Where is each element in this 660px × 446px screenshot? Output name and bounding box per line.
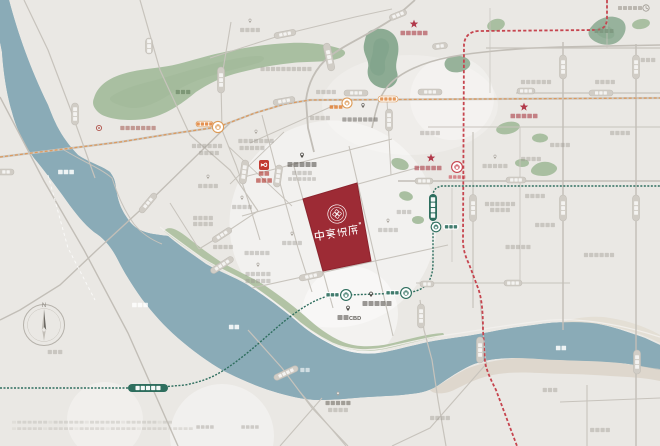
svg-text:N: N [42,303,46,309]
svg-text:CBD: CBD [349,316,361,322]
